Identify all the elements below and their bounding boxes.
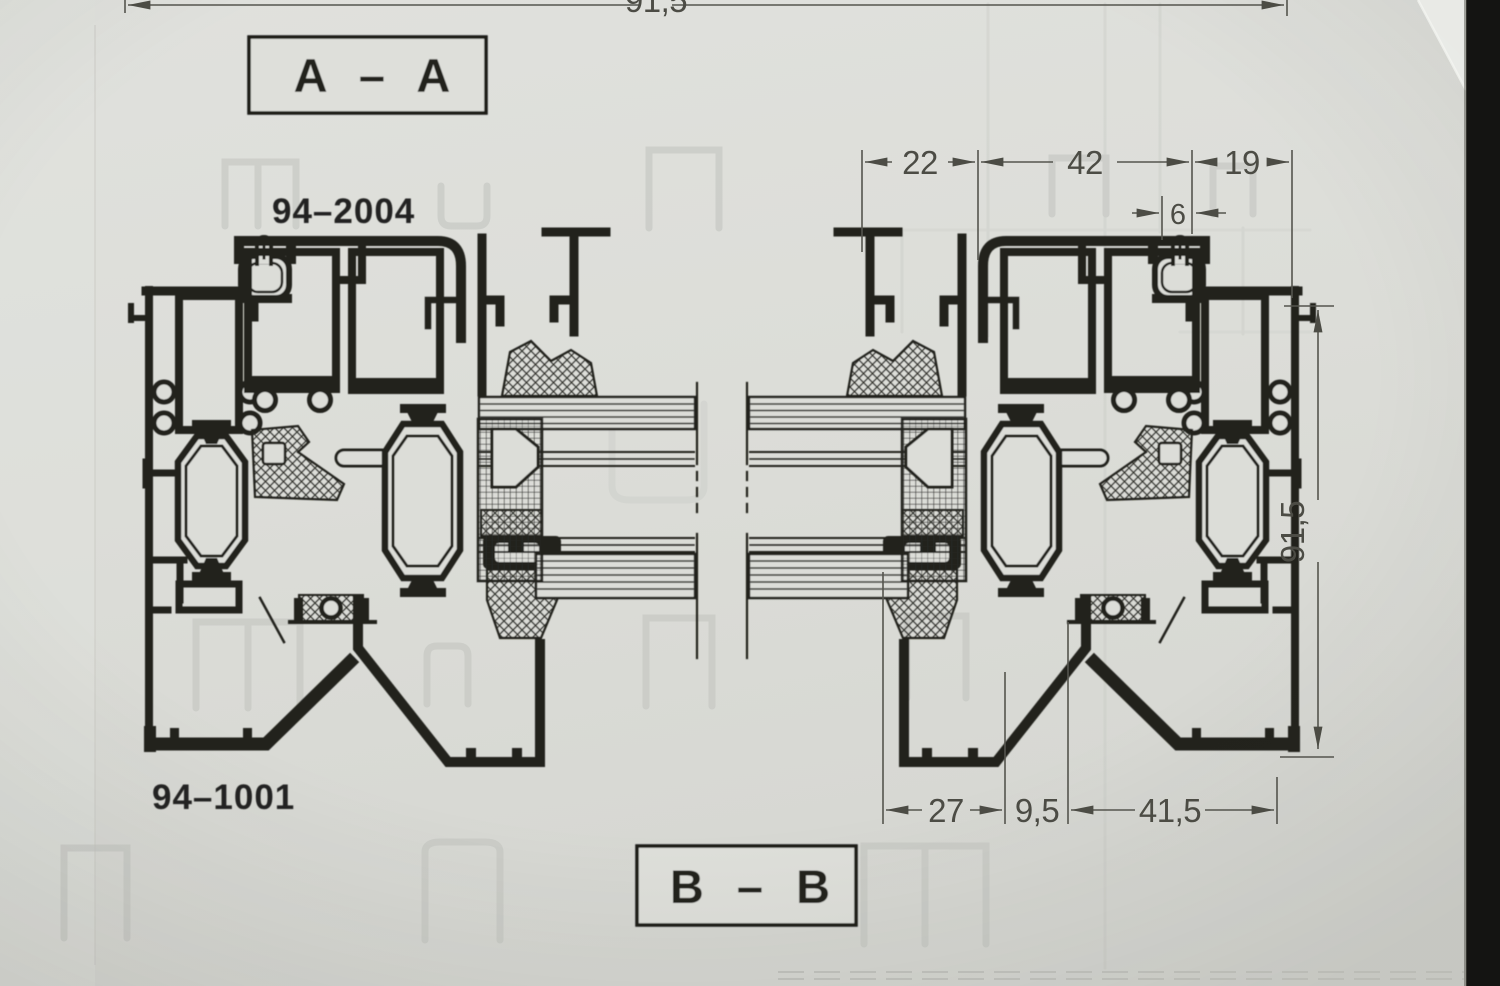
film-edge-sliver (1464, 0, 1467, 986)
film-edge-band (1466, 0, 1500, 986)
profile-section-drawing: 91,5 22 42 19 6 91,5 (0, 0, 1500, 986)
photo-artifacts (0, 0, 1500, 986)
photographed-drawing-page: 91,5 22 42 19 6 91,5 (0, 0, 1500, 986)
